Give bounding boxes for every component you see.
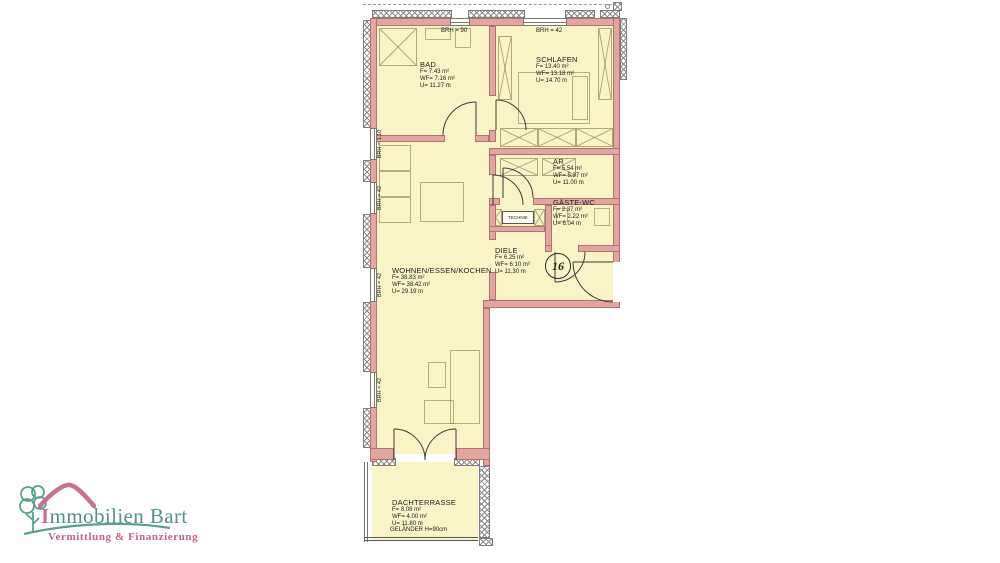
room-label-gaeste-wc: GÄSTE-WC F= 2.37 m² WF= 2.22 m² U= 6.04 … bbox=[553, 198, 595, 229]
technik-label-box: TECHNIK bbox=[502, 211, 534, 224]
room-perimeter: U= 6.04 m bbox=[553, 221, 595, 228]
room-label-dachterrasse: DACHTERRASSE F= 8.08 m² WF= 4.00 m² U= 1… bbox=[392, 498, 456, 529]
brh-label-vertical: BRH = 42 bbox=[377, 373, 385, 407]
room-name: BAD bbox=[420, 60, 455, 69]
room-label-wohnen: WOHNEN/ESSEN/KOCHEN F= 38.83 m² WF= 38.4… bbox=[392, 266, 492, 297]
door-arcs bbox=[0, 0, 1000, 563]
room-perimeter: U= 11.00 m bbox=[553, 180, 588, 187]
logo-tagline: Vermittlung & Finanzierung bbox=[48, 531, 198, 543]
room-perimeter: U= 11.30 m bbox=[495, 269, 530, 276]
room-living-area: WF= 4.00 m² bbox=[392, 514, 456, 521]
room-name: DIELE bbox=[495, 246, 530, 255]
room-name: AR bbox=[553, 157, 588, 166]
room-name: DACHTERRASSE bbox=[392, 498, 456, 507]
room-area: F= 5.54 m² bbox=[553, 166, 588, 173]
room-name: GÄSTE-WC bbox=[553, 198, 595, 207]
technik-label: TECHNIK bbox=[508, 215, 528, 220]
room-name: WOHNEN/ESSEN/KOCHEN bbox=[392, 266, 492, 275]
room-area: F= 2.37 m² bbox=[553, 207, 595, 214]
room-perimeter: U= 14.70 m bbox=[536, 78, 578, 85]
brh-label-vertical: BRH = 42 bbox=[377, 181, 385, 215]
room-name: SCHLAFEN bbox=[536, 55, 578, 64]
room-area: F= 38.83 m² bbox=[392, 275, 492, 282]
room-area: F= 7.43 m² bbox=[420, 69, 455, 76]
brh-label: BRH = 42 bbox=[536, 28, 562, 34]
brh-label: BRH = 90 bbox=[441, 28, 467, 34]
room-living-area: WF= 7.16 m² bbox=[420, 76, 455, 83]
room-living-area: WF= 5.37 m² bbox=[553, 173, 588, 180]
room-living-area: WF= 38.42 m² bbox=[392, 282, 492, 289]
floorplan-page: TECHNIK 16 BAD F= 7.43 m² WF= 7.16 m² U=… bbox=[0, 0, 1000, 563]
brh-label-vertical: BRH = 42 bbox=[377, 268, 385, 302]
unit-number: 16 bbox=[552, 259, 564, 273]
unit-number-badge: 16 bbox=[545, 253, 571, 279]
room-label-schlafen: SCHLAFEN F= 13.40 m² WF= 13.18 m² U= 14.… bbox=[536, 55, 578, 86]
room-label-bad: BAD F= 7.43 m² WF= 7.16 m² U= 11.27 m bbox=[420, 60, 455, 91]
room-living-area: WF= 6.10 m² bbox=[495, 262, 530, 269]
room-area: F= 13.40 m² bbox=[536, 64, 578, 71]
room-living-area: WF= 2.22 m² bbox=[553, 214, 595, 221]
room-perimeter: U= 29.19 m bbox=[392, 289, 492, 296]
room-living-area: WF= 13.18 m² bbox=[536, 71, 578, 78]
railing-label: GELÄNDER H=90cm bbox=[390, 527, 447, 533]
room-area: F= 6.25 m² bbox=[495, 255, 530, 262]
brh-label-vertical: BRH = 1.10 bbox=[377, 125, 385, 163]
room-perimeter: U= 11.27 m bbox=[420, 83, 455, 90]
room-label-diele: DIELE F= 6.25 m² WF= 6.10 m² U= 11.30 m bbox=[495, 246, 530, 277]
room-area: F= 8.08 m² bbox=[392, 507, 456, 514]
room-label-ar: AR F= 5.54 m² WF= 5.37 m² U= 11.00 m bbox=[553, 157, 588, 188]
